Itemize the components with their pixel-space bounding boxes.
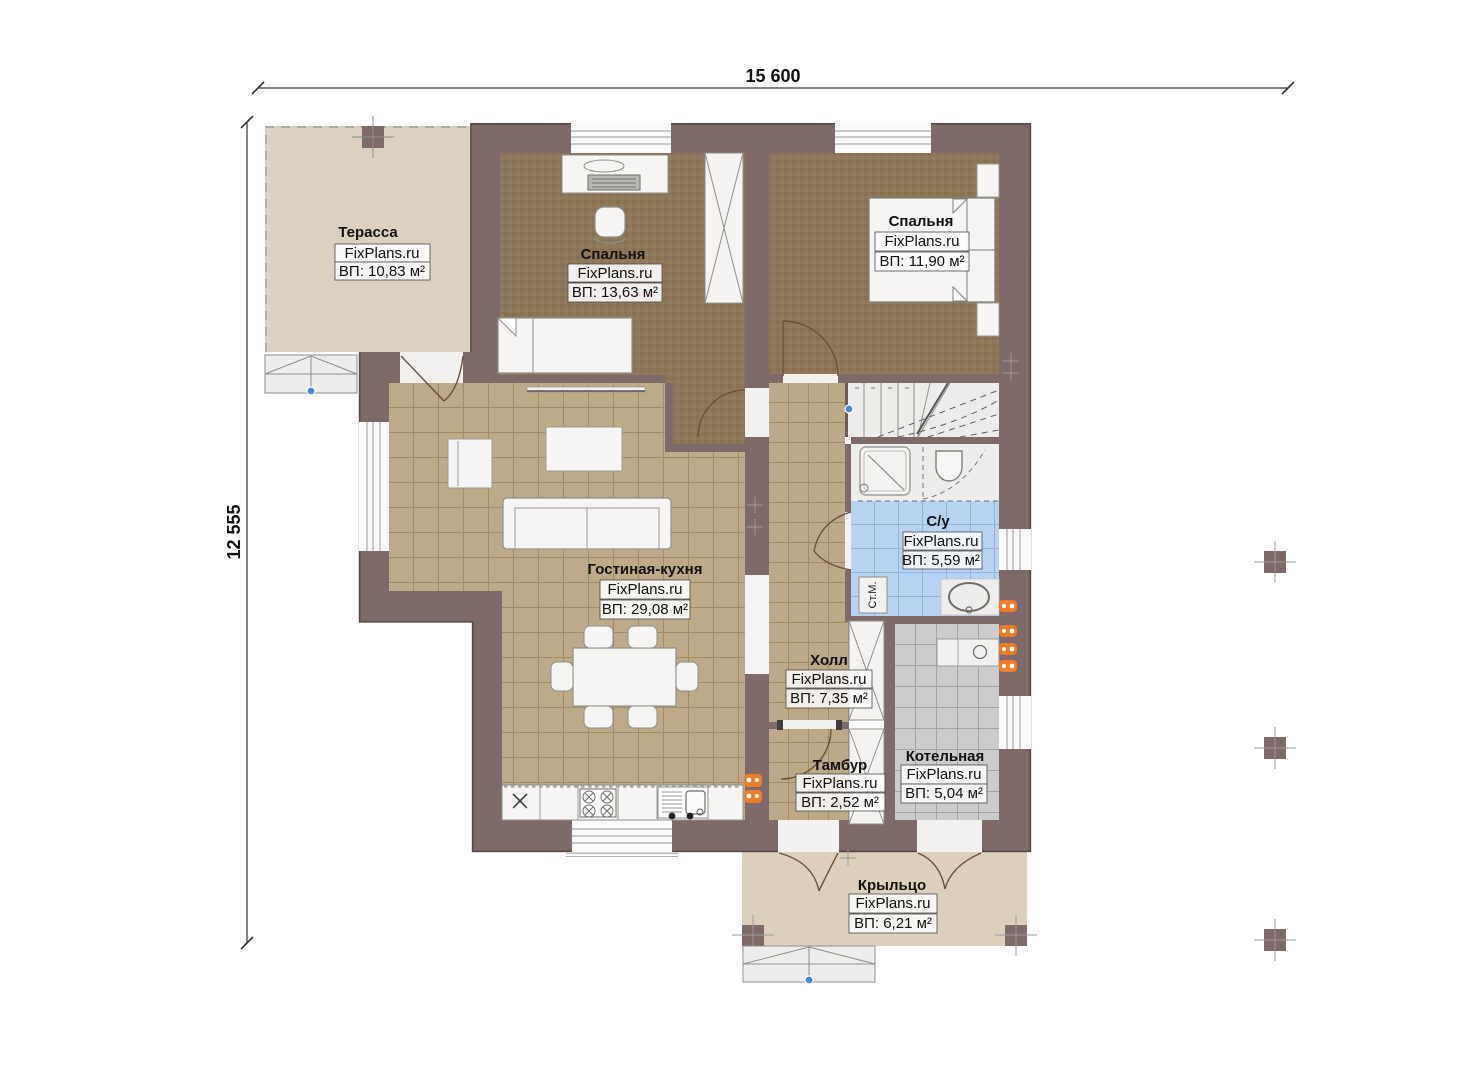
svg-text:Гостиная-кухня: Гостиная-кухня xyxy=(588,561,703,578)
svg-text:ВП: 7,35 м²: ВП: 7,35 м² xyxy=(790,690,868,707)
svg-text:ВП: 5,59 м²: ВП: 5,59 м² xyxy=(902,552,980,569)
svg-text:Крыльцо: Крыльцо xyxy=(858,877,926,894)
svg-text:Холл: Холл xyxy=(810,652,848,669)
svg-text:FixPlans.ru: FixPlans.ru xyxy=(855,895,930,912)
svg-text:12 555: 12 555 xyxy=(224,504,244,559)
svg-text:FixPlans.ru: FixPlans.ru xyxy=(607,581,682,598)
svg-text:FixPlans.ru: FixPlans.ru xyxy=(791,671,866,688)
svg-text:Котельная: Котельная xyxy=(906,748,985,765)
svg-text:Тамбур: Тамбур xyxy=(813,757,867,774)
svg-text:FixPlans.ru: FixPlans.ru xyxy=(884,233,959,250)
svg-text:Спальня: Спальня xyxy=(581,246,646,263)
svg-text:15 600: 15 600 xyxy=(745,66,800,86)
svg-text:FixPlans.ru: FixPlans.ru xyxy=(802,775,877,792)
svg-text:ВП: 10,83 м²: ВП: 10,83 м² xyxy=(339,263,425,280)
svg-text:ВП: 11,90 м²: ВП: 11,90 м² xyxy=(879,253,964,270)
svg-text:ВП: 5,04 м²: ВП: 5,04 м² xyxy=(905,785,983,802)
svg-text:ВП: 2,52 м²: ВП: 2,52 м² xyxy=(801,794,879,811)
svg-text:С/у: С/у xyxy=(926,513,950,530)
svg-text:FixPlans.ru: FixPlans.ru xyxy=(344,245,419,262)
svg-text:ВП: 29,08 м²: ВП: 29,08 м² xyxy=(602,601,688,618)
svg-text:Терасса: Терасса xyxy=(338,224,398,241)
svg-text:ВП: 6,21 м²: ВП: 6,21 м² xyxy=(854,915,932,932)
svg-text:ВП: 13,63 м²: ВП: 13,63 м² xyxy=(572,284,658,301)
svg-text:FixPlans.ru: FixPlans.ru xyxy=(906,766,981,783)
svg-text:Ст.М.: Ст.М. xyxy=(867,581,879,608)
svg-text:FixPlans.ru: FixPlans.ru xyxy=(903,533,978,550)
svg-text:FixPlans.ru: FixPlans.ru xyxy=(577,265,652,282)
svg-text:Спальня: Спальня xyxy=(889,213,954,230)
